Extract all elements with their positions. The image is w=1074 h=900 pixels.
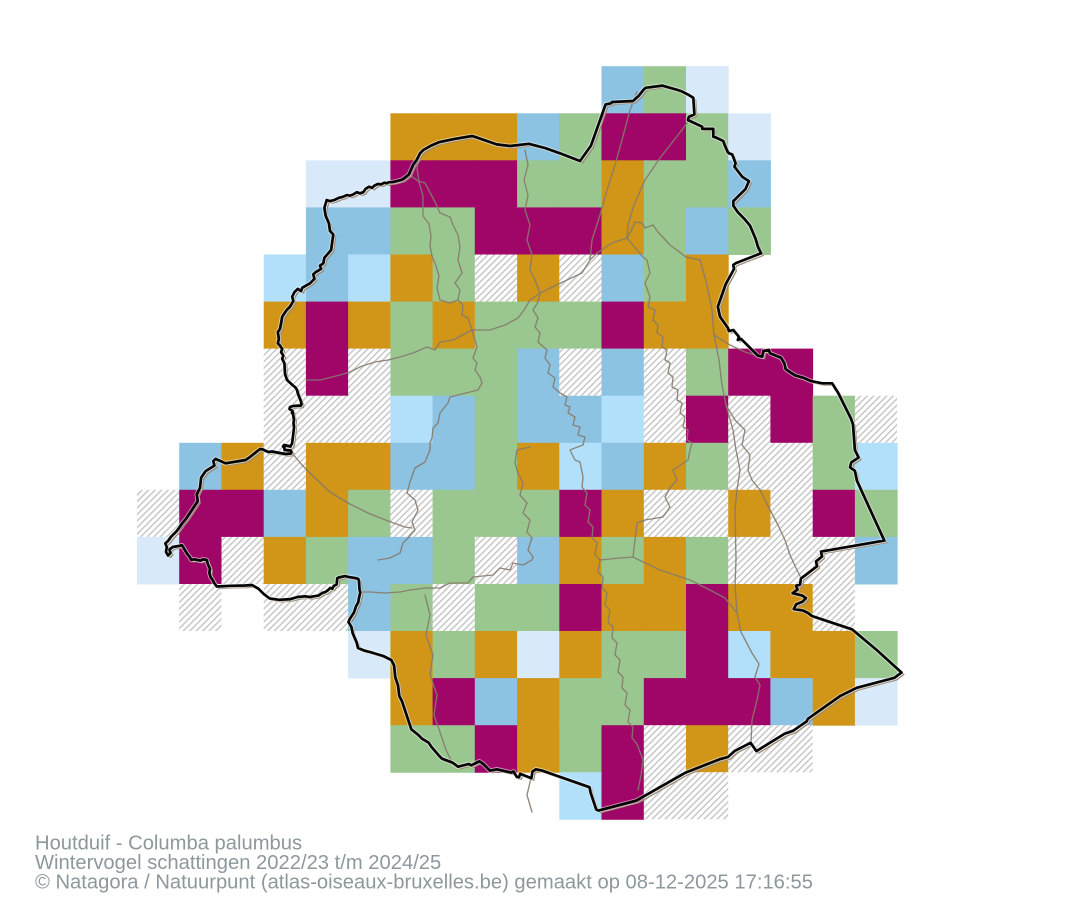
svg-text:© Natagora / Natuurpunt (atlas: © Natagora / Natuurpunt (atlas-oiseaux-b… <box>35 872 813 894</box>
